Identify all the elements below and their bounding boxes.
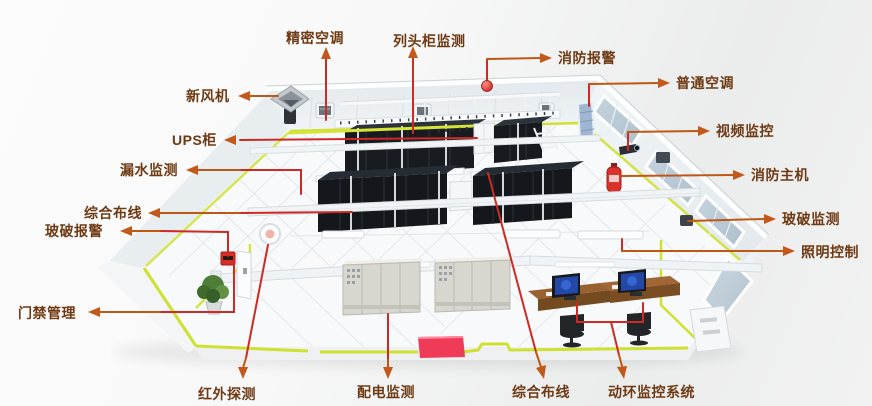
regular-ac-device	[578, 102, 594, 140]
label-fire-control-host: 消防主机	[751, 167, 809, 183]
machine-room-illustration	[0, 0, 872, 406]
label-lighting-control: 照明控制	[801, 244, 859, 260]
label-fresh-air-fan: 新风机	[186, 88, 230, 104]
label-row-head-cabinet-monitoring: 列头柜监测	[393, 33, 466, 49]
entry-door	[237, 251, 251, 299]
server-rack-row-front-left	[316, 165, 464, 232]
label-integrated-cabling-left: 综合布线	[84, 205, 142, 221]
label-video-surveillance: 视频监控	[716, 123, 774, 139]
label-regular-ac: 普通空调	[676, 75, 734, 91]
label-glass-break-monitoring: 玻破监测	[782, 211, 840, 227]
label-water-leak-monitoring: 漏水监测	[120, 162, 178, 178]
label-integrated-cabling-bottom: 综合布线	[512, 384, 570, 400]
entry-carpet	[418, 336, 465, 358]
fire-alarm-ball	[482, 81, 493, 92]
label-fire-alarm: 消防报警	[558, 50, 616, 66]
label-access-control: 门禁管理	[18, 305, 76, 321]
server-rack-row-front-right	[471, 161, 584, 225]
label-power-distribution-monitoring: 配电监测	[357, 384, 415, 400]
machine-room-diagram: 精密空调 列头柜监测 消防报警 新风机 普通空调 UPS柜 视频监控 漏水监测 …	[0, 0, 872, 406]
label-ups-cabinet: UPS柜	[172, 132, 217, 148]
label-glass-break-alarm: 玻破报警	[45, 223, 103, 239]
corner-ac-cabinet	[690, 306, 731, 352]
label-infrared-detection: 红外探测	[198, 386, 256, 402]
smoke-infrared-detector	[260, 224, 280, 244]
label-precision-ac: 精密空调	[286, 30, 344, 46]
label-facility-monitoring-system: 动环监控系统	[608, 384, 695, 400]
fire-extinguisher-device	[607, 163, 621, 192]
